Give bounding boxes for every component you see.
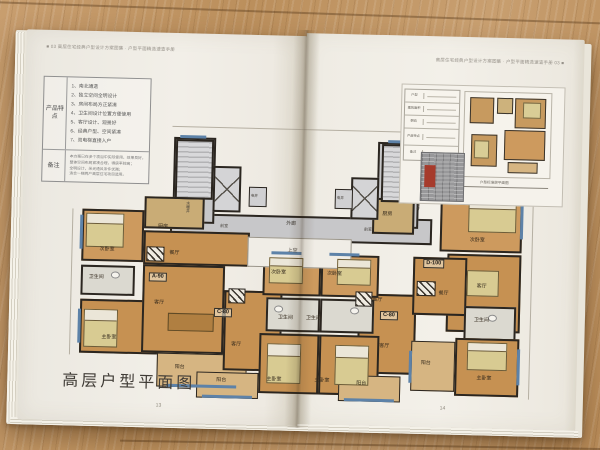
room-label-dining: 餐厅	[169, 251, 179, 256]
unit-code-c80-right: C-80	[380, 311, 398, 320]
unit-code-d100: D-100	[423, 259, 444, 269]
elevator-shaft-right	[350, 177, 379, 220]
features-row: 产品特点 1、南北通透 2、独立空间全明设计 3、房间布局方正紧凑 4、卫生间设…	[43, 77, 151, 152]
highlighted-unit-red	[424, 165, 436, 187]
inset-row-label: 建筑面积	[405, 106, 424, 112]
inset-value-line	[427, 122, 456, 124]
room-label-lobby: 前室	[364, 227, 372, 232]
toilet	[350, 307, 359, 314]
elevator-shaft-left	[212, 166, 241, 213]
bed	[334, 345, 369, 386]
inset-value-line	[427, 96, 456, 98]
mini-room	[504, 130, 546, 161]
room-kitchen-a	[144, 196, 205, 229]
room-label-plumb-shaft: 水暖井	[186, 201, 190, 213]
room-label-living: 客厅	[154, 300, 164, 305]
room-bath-a	[80, 265, 135, 296]
features-list: 1、南北通透 2、独立空间全明设计 3、房间布局方正紧凑 4、卫生间设计位置方便…	[66, 77, 151, 151]
page-number-right: 14	[440, 405, 446, 411]
mini-bed	[523, 102, 541, 118]
duct-shaft	[355, 291, 372, 306]
room-label-corridor: 外廊	[286, 222, 296, 227]
room-label-dining: 餐厅	[372, 298, 382, 303]
staircase-left	[175, 139, 214, 200]
room-label-balcony: 阳台	[421, 361, 431, 366]
room-label-bedroom2: 次卧室	[271, 270, 286, 275]
wood-plank-seam	[0, 1, 600, 25]
inset-spec-table: 户型 建筑面积 朝向 产品特点 备注	[403, 89, 461, 162]
notes-row: 备注 本方案已在多个项目中实际使用，效果良好， 整体空间布局紧凑合理，得房率较高…	[42, 149, 149, 184]
inset-value-line	[427, 109, 456, 111]
duct-shaft	[416, 281, 435, 296]
plan-title: 高层户型平面图	[62, 366, 196, 393]
wood-plank-seam	[120, 440, 600, 450]
desk-photo-scene: ■ 03 高层住宅经典户型设计方案图集 · 户型平面精选速查手册 高层住宅经典户…	[0, 0, 600, 450]
inset-table-row: 建筑面积	[405, 103, 459, 117]
building-elevation-thumbnail	[420, 152, 465, 202]
room-label-kitchen: 厨房	[382, 212, 392, 217]
mini-room	[470, 97, 495, 124]
inset-table-row: 产品特点	[404, 129, 458, 147]
mini-room	[497, 98, 513, 114]
open-plan-book: ■ 03 高层住宅经典户型设计方案图集 · 户型平面精选速查手册 高层住宅经典户…	[15, 21, 585, 441]
bed	[83, 309, 118, 348]
room-label-bath: 卫生间	[89, 275, 104, 280]
room-label-lobby: 前室	[220, 223, 228, 228]
inset-row-label: 朝向	[405, 119, 424, 125]
unit-code-c80-left: C-80	[214, 308, 232, 317]
duct-shaft	[228, 288, 245, 303]
room-label-bath: 卫生间	[278, 315, 293, 320]
features-table: 产品特点 1、南北通透 2、独立空间全明设计 3、房间布局方正紧凑 4、卫生间设…	[41, 76, 152, 185]
inset-mini-floorplan	[462, 91, 552, 179]
room-label-elec-shaft: 电井	[337, 196, 344, 201]
inset-row-label: 户型	[405, 93, 424, 99]
notes-list: 本方案已在多个项目中实际使用，效果良好， 整体空间布局紧凑合理，得房率较高； 全…	[65, 150, 149, 183]
room-label-master: 主卧室	[476, 376, 491, 381]
room-label-living: 客厅	[477, 284, 487, 289]
room-label-master: 主卧室	[266, 377, 281, 382]
room-label-void: 上空	[287, 249, 297, 254]
window-line	[180, 135, 206, 139]
toilet	[274, 305, 283, 312]
inset-table-row: 朝向	[405, 116, 459, 130]
inset-value-line	[426, 137, 455, 139]
bed	[86, 213, 125, 248]
unit-code-a90: A-90	[149, 272, 167, 281]
room-label-kitchen: 厨房	[158, 225, 168, 230]
room-label-bath: 卫生间	[474, 318, 489, 323]
room-label-bath: 卫生间	[306, 316, 321, 321]
room-label-master: 主卧室	[314, 378, 329, 383]
toilet	[488, 315, 497, 322]
sofa	[168, 313, 214, 332]
room-label-master: 主卧室	[101, 335, 116, 340]
mini-room	[507, 162, 537, 174]
inset-row-label: 产品特点	[404, 134, 423, 140]
note-line: 适合一梯两户高层住宅项目选用。	[69, 172, 145, 180]
room-label-elec-shaft: 电井	[251, 194, 258, 199]
room-label-bedroom2: 次卧室	[99, 247, 114, 252]
unit-inset-panel: 户型 建筑面积 朝向 产品特点 备注	[399, 83, 566, 207]
room-label-bedroom2: 次卧室	[470, 238, 485, 243]
features-row-label: 产品特点	[43, 77, 68, 150]
inset-table-row: 户型	[405, 90, 459, 104]
room-label-balcony: 阳台	[216, 378, 226, 383]
room-label-bedroom2: 次卧室	[327, 272, 342, 277]
room-label-living: 客厅	[379, 344, 389, 349]
feature-item: 7、双电梯直接入户	[70, 136, 146, 147]
room-label-dining: 餐厅	[438, 291, 448, 296]
bed	[467, 342, 508, 371]
room-label-living: 客厅	[231, 342, 241, 347]
notes-row-label: 备注	[42, 150, 66, 182]
room-label-balcony: 阳台	[356, 381, 366, 386]
page-number-left: 13	[156, 403, 162, 409]
duct-shaft	[146, 246, 164, 261]
room-bath-d	[463, 306, 516, 341]
balcony-d	[410, 341, 455, 392]
mini-bed	[474, 140, 489, 158]
toilet	[111, 271, 120, 278]
